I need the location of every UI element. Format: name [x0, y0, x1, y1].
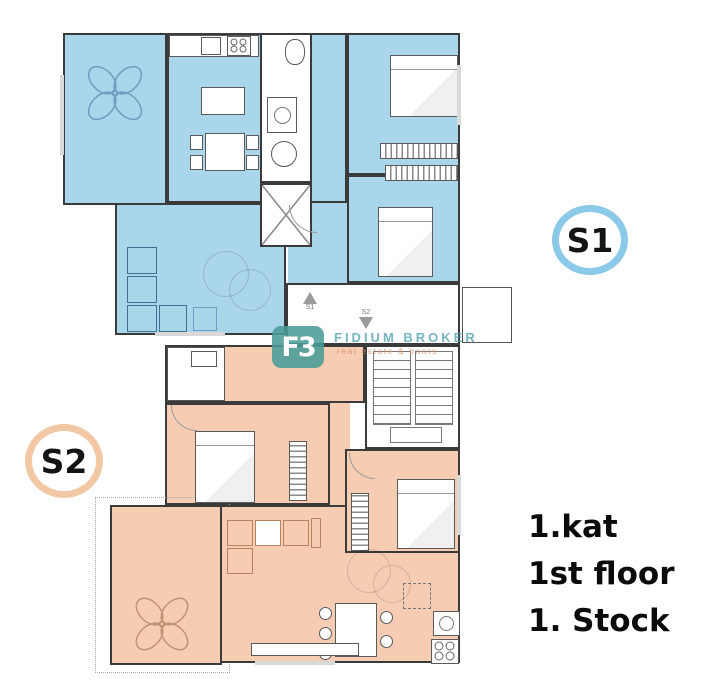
- stair-landing: [390, 427, 442, 443]
- stove-icon: [431, 639, 459, 664]
- wardrobe-icon: [351, 493, 369, 551]
- apartment-badge-s1: S1: [552, 205, 628, 275]
- floor-label-croatian: 1.kat: [528, 504, 675, 551]
- bed-icon: [378, 207, 433, 277]
- window: [255, 661, 335, 665]
- bed-icon: [397, 479, 455, 549]
- chair-icon: [190, 155, 203, 170]
- sink-icon: [271, 141, 297, 167]
- window: [155, 332, 225, 336]
- floor-plan-image: S1 S2: [0, 0, 720, 690]
- sofa-icon: [283, 520, 309, 546]
- sofa-icon: [159, 305, 187, 332]
- sofa-icon: [255, 520, 281, 546]
- wardrobe-icon: [289, 441, 307, 501]
- bed-icon: [195, 431, 255, 503]
- sofa-icon: [127, 247, 157, 274]
- deco-circles: [229, 269, 271, 311]
- chair-icon: [380, 611, 393, 624]
- chair-icon: [190, 135, 203, 150]
- agency-logo-text: F3: [281, 332, 314, 363]
- badge-s2-label: S2: [41, 442, 88, 481]
- dining-table-icon: [205, 133, 245, 171]
- stairs-icon: [415, 351, 453, 425]
- kitchen-island: [201, 87, 245, 115]
- floor-label-block: 1.kat 1st floor 1. Stock: [528, 504, 675, 645]
- floor-label-german: 1. Stock: [528, 598, 675, 645]
- chair-icon: [319, 627, 332, 640]
- sink-icon: [433, 611, 460, 636]
- stairs-icon: [373, 351, 411, 425]
- deco-circles: [373, 565, 411, 603]
- apartment-badge-s2: S2: [25, 424, 103, 498]
- sofa-icon: [227, 520, 253, 546]
- sink-icon: [201, 37, 221, 55]
- badge-s1-label: S1: [567, 221, 614, 260]
- sofa-icon: [127, 276, 157, 303]
- entrance-label-s1: S1: [303, 304, 317, 312]
- sofa-armrest: [311, 518, 321, 548]
- s1-kitchen-dining: [167, 33, 347, 203]
- sink-icon: [191, 351, 217, 367]
- watermark-tagline: real estate & boats: [337, 347, 438, 356]
- side-table-icon: [193, 307, 217, 331]
- chair-icon: [246, 135, 259, 150]
- sofa-icon: [227, 548, 253, 574]
- window: [457, 475, 461, 535]
- wc-icon: [285, 39, 305, 65]
- floor-label-english: 1st floor: [528, 551, 675, 598]
- agency-logo: F3: [272, 326, 324, 368]
- chair-icon: [246, 155, 259, 170]
- window: [457, 65, 461, 125]
- stove-icon: [227, 36, 251, 56]
- entrance-arrow-up-icon: S1: [303, 292, 317, 312]
- tv-sideboard: [251, 643, 359, 656]
- wardrobe-icon: [385, 165, 458, 181]
- tree-icon: [125, 587, 199, 661]
- watermark-brand: FIDIUM BROKER: [334, 330, 478, 345]
- tree-icon: [77, 55, 153, 131]
- entrance-label-s2: S2: [359, 309, 373, 317]
- wardrobe-icon: [380, 143, 458, 159]
- bed-icon: [390, 55, 458, 117]
- washing-machine-icon: [267, 97, 297, 133]
- chair-icon: [380, 635, 393, 648]
- sofa-icon: [127, 305, 157, 332]
- chair-icon: [319, 607, 332, 620]
- window: [60, 75, 64, 155]
- entrance-arrow-down-icon: S2: [359, 309, 373, 329]
